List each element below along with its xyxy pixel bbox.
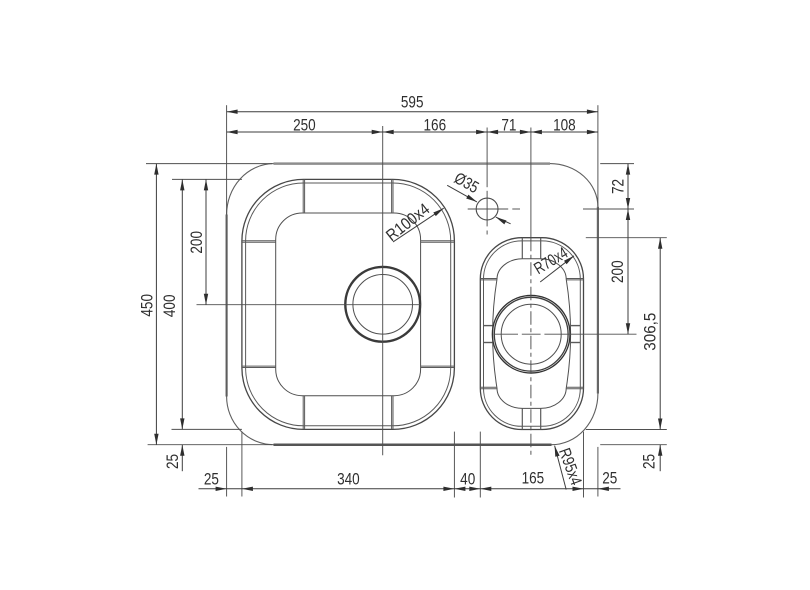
svg-text:25: 25: [204, 470, 219, 488]
svg-text:250: 250: [293, 116, 316, 134]
svg-text:166: 166: [424, 116, 447, 134]
svg-text:200: 200: [609, 260, 627, 283]
svg-text:200: 200: [188, 231, 206, 254]
svg-text:25: 25: [602, 470, 617, 488]
svg-text:340: 340: [337, 470, 360, 488]
svg-text:400: 400: [161, 295, 179, 318]
svg-text:71: 71: [501, 116, 516, 134]
svg-text:25: 25: [164, 454, 182, 469]
svg-text:72: 72: [610, 179, 628, 194]
svg-text:306,5: 306,5: [642, 313, 660, 351]
svg-text:595: 595: [401, 93, 424, 111]
svg-text:108: 108: [553, 116, 576, 134]
svg-text:165: 165: [522, 470, 545, 488]
svg-text:450: 450: [138, 294, 156, 317]
svg-text:40: 40: [460, 470, 475, 488]
svg-text:25: 25: [640, 454, 658, 469]
